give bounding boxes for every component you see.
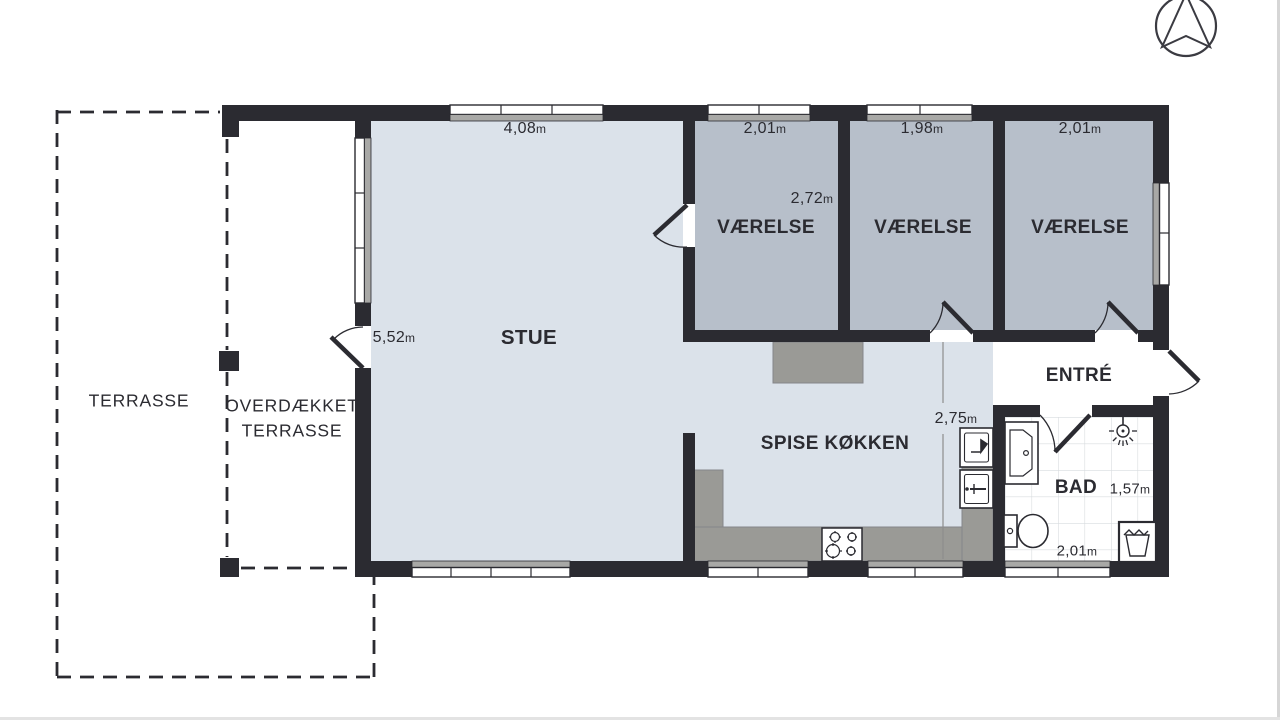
stove (822, 528, 862, 561)
toilet (1004, 515, 1048, 548)
room-label-vaerelse-2: VÆRELSE (874, 217, 972, 239)
dim-stue-width: 4,08m (504, 120, 547, 138)
dim-vaerelse-2-width: 1,98m (901, 120, 944, 138)
window-vaerelse2-top (867, 105, 972, 121)
area-label-overdaekket-1: OVERDÆKKET (225, 396, 358, 417)
window-stue-bottom (412, 561, 570, 577)
kitchen-sink-1 (960, 428, 997, 467)
window-stue-west (355, 138, 371, 303)
dim-bad-width: 2,01m (1057, 543, 1098, 560)
room-label-entre: ENTRÉ (1046, 365, 1112, 387)
room-label-bad: BAD (1055, 477, 1097, 499)
floorplan-page: TERRASSE OVERDÆKKET TERRASSE STUE VÆRELS… (0, 0, 1280, 720)
area-label-terrasse: TERRASSE (89, 391, 190, 412)
dim-bad-depth: 1,57m (1110, 481, 1151, 498)
dim-stue-depth: 5,52m (373, 329, 416, 347)
kitchen-sink-2 (960, 470, 993, 508)
room-label-vaerelse-1: VÆRELSE (717, 217, 815, 239)
washing-machine (1119, 522, 1156, 562)
window-koekken-bottom-1 (708, 561, 808, 577)
window-vaerelse1-top (708, 105, 810, 121)
dim-koekken-depth: 2,75m (935, 410, 978, 428)
dim-vaerelse-1-depth: 2,72m (791, 190, 834, 208)
kitchen-island (773, 342, 863, 383)
window-stue-top (450, 105, 603, 121)
dim-vaerelse-3-width: 2,01m (1059, 120, 1102, 138)
area-label-overdaekket-2: TERRASSE (242, 421, 343, 442)
window-koekken-bottom-2 (868, 561, 963, 577)
room-label-spise-koekken: SPISE KØKKEN (761, 433, 909, 455)
window-bad-bottom (1005, 561, 1110, 577)
room-label-vaerelse-3: VÆRELSE (1031, 217, 1129, 239)
room-label-stue: STUE (501, 326, 557, 350)
floorplan-drawing (0, 0, 1280, 720)
dim-vaerelse-1-width: 2,01m (744, 120, 787, 138)
north-compass-icon (1156, 0, 1216, 56)
window-vaerelse3-east (1153, 183, 1169, 285)
bathroom-vanity (1005, 422, 1038, 484)
door-entrance (1169, 351, 1199, 394)
